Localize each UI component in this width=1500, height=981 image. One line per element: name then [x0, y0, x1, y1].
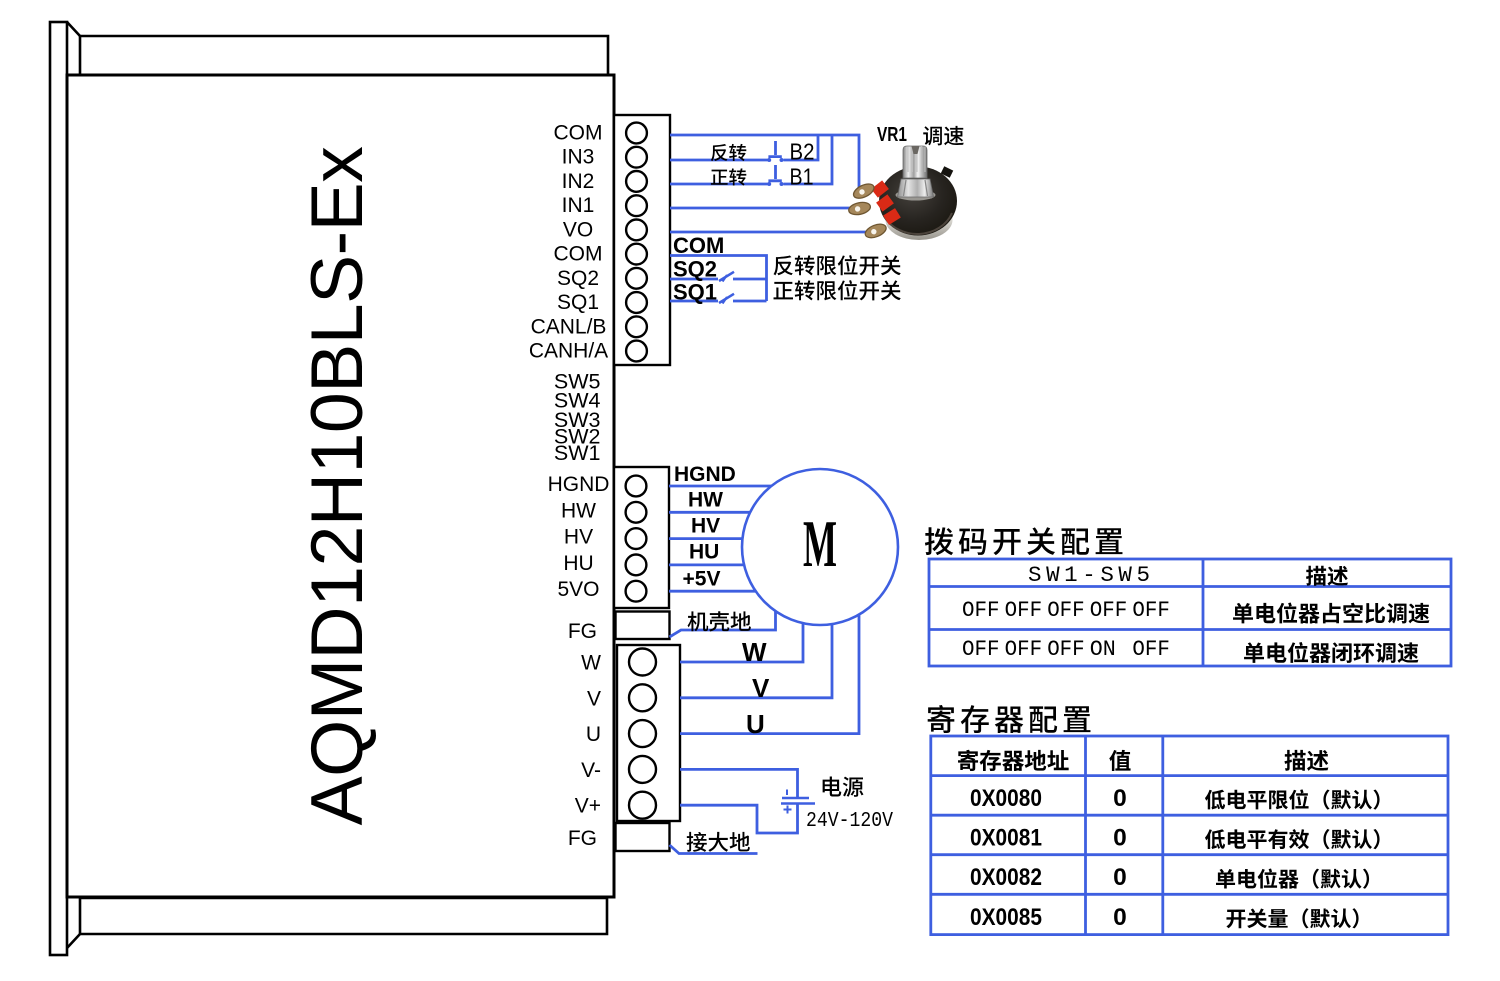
svg-text:W: W [742, 637, 767, 667]
svg-text:M: M [803, 507, 837, 581]
svg-text:OFF: OFF [1047, 598, 1085, 623]
svg-text:FG: FG [568, 827, 597, 850]
svg-text:W: W [581, 652, 601, 675]
svg-text:0: 0 [1113, 864, 1127, 891]
svg-text:U: U [746, 709, 765, 739]
svg-text:COM: COM [673, 233, 724, 258]
svg-text:SW1-SW5: SW1-SW5 [1028, 562, 1150, 588]
svg-text:OFF: OFF [1047, 637, 1085, 662]
svg-text:HW: HW [561, 499, 596, 522]
svg-text:CANH/A: CANH/A [529, 339, 608, 362]
svg-text:IN2: IN2 [562, 170, 595, 193]
svg-text:HV: HV [564, 526, 593, 549]
svg-text:SQ1: SQ1 [673, 280, 717, 305]
svg-text:OFF: OFF [1090, 598, 1128, 623]
svg-text:VR1: VR1 [877, 124, 907, 146]
svg-text:IN3: IN3 [562, 146, 595, 169]
svg-text:HU: HU [689, 541, 719, 564]
svg-text:0X0085: 0X0085 [970, 904, 1042, 931]
svg-text:24V-120V: 24V-120V [806, 810, 893, 833]
svg-text:OFF: OFF [962, 637, 1000, 662]
svg-text:0: 0 [1113, 904, 1127, 931]
svg-text:COM: COM [554, 122, 603, 145]
svg-text:0X0082: 0X0082 [970, 864, 1042, 891]
svg-text:0: 0 [1113, 785, 1127, 812]
svg-text:SQ2: SQ2 [673, 257, 717, 282]
svg-text:HV: HV [691, 515, 720, 538]
svg-text:SQ1: SQ1 [557, 291, 599, 314]
svg-text:HU: HU [563, 552, 593, 575]
svg-text:B2: B2 [790, 139, 815, 165]
svg-text:+5V: +5V [683, 568, 721, 591]
svg-text:HGND: HGND [674, 463, 736, 486]
svg-text:U: U [586, 723, 601, 746]
svg-text:COM: COM [554, 243, 603, 266]
svg-text:ON: ON [1090, 637, 1116, 662]
svg-text:OFF: OFF [1005, 598, 1043, 623]
svg-text:VO: VO [563, 218, 593, 241]
svg-text:HGND: HGND [548, 473, 610, 496]
svg-text:V: V [587, 687, 601, 710]
svg-text:HW: HW [688, 489, 723, 512]
svg-text:OFF: OFF [1132, 598, 1170, 623]
svg-text:IN1: IN1 [562, 194, 595, 217]
svg-text:0X0081: 0X0081 [970, 825, 1042, 852]
svg-text:CANL/B: CANL/B [531, 315, 607, 338]
svg-text:SW1: SW1 [554, 441, 601, 465]
svg-text:V+: V+ [575, 795, 601, 818]
svg-text:V: V [752, 673, 770, 703]
svg-text:B1: B1 [790, 163, 814, 189]
svg-text:OFF: OFF [1132, 637, 1170, 662]
svg-text:0X0080: 0X0080 [970, 785, 1042, 812]
svg-text:FG: FG [568, 620, 597, 643]
svg-text:AQMD12H10BLS-Ex: AQMD12H10BLS-Ex [295, 147, 378, 826]
svg-text:5VO: 5VO [557, 578, 599, 601]
svg-text:0: 0 [1113, 825, 1127, 852]
svg-text:OFF: OFF [962, 598, 1000, 623]
svg-text:OFF: OFF [1005, 637, 1043, 662]
svg-text:V-: V- [581, 759, 601, 782]
svg-text:SQ2: SQ2 [557, 267, 599, 290]
